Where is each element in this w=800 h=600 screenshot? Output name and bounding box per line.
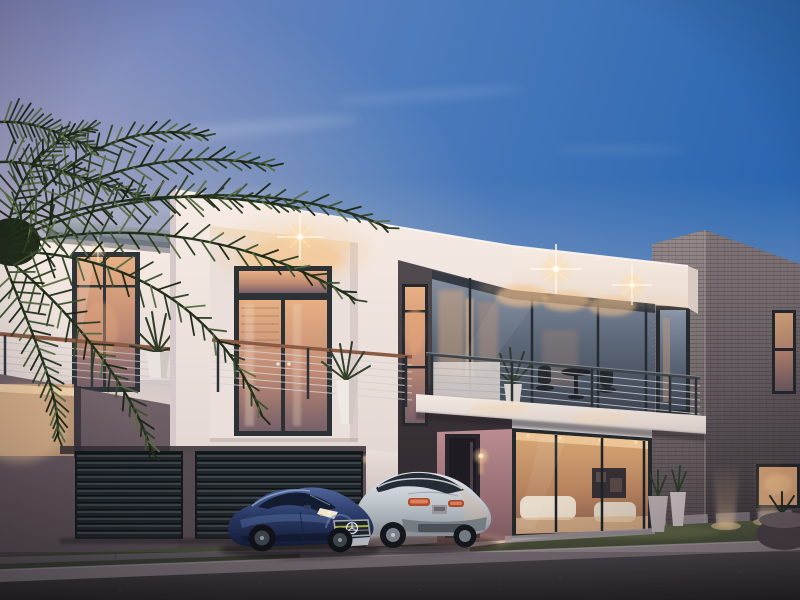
scene-canvas	[0, 0, 800, 600]
dusk-house-render	[0, 0, 800, 600]
bottom-shade	[0, 552, 800, 600]
vignette	[0, 0, 800, 600]
